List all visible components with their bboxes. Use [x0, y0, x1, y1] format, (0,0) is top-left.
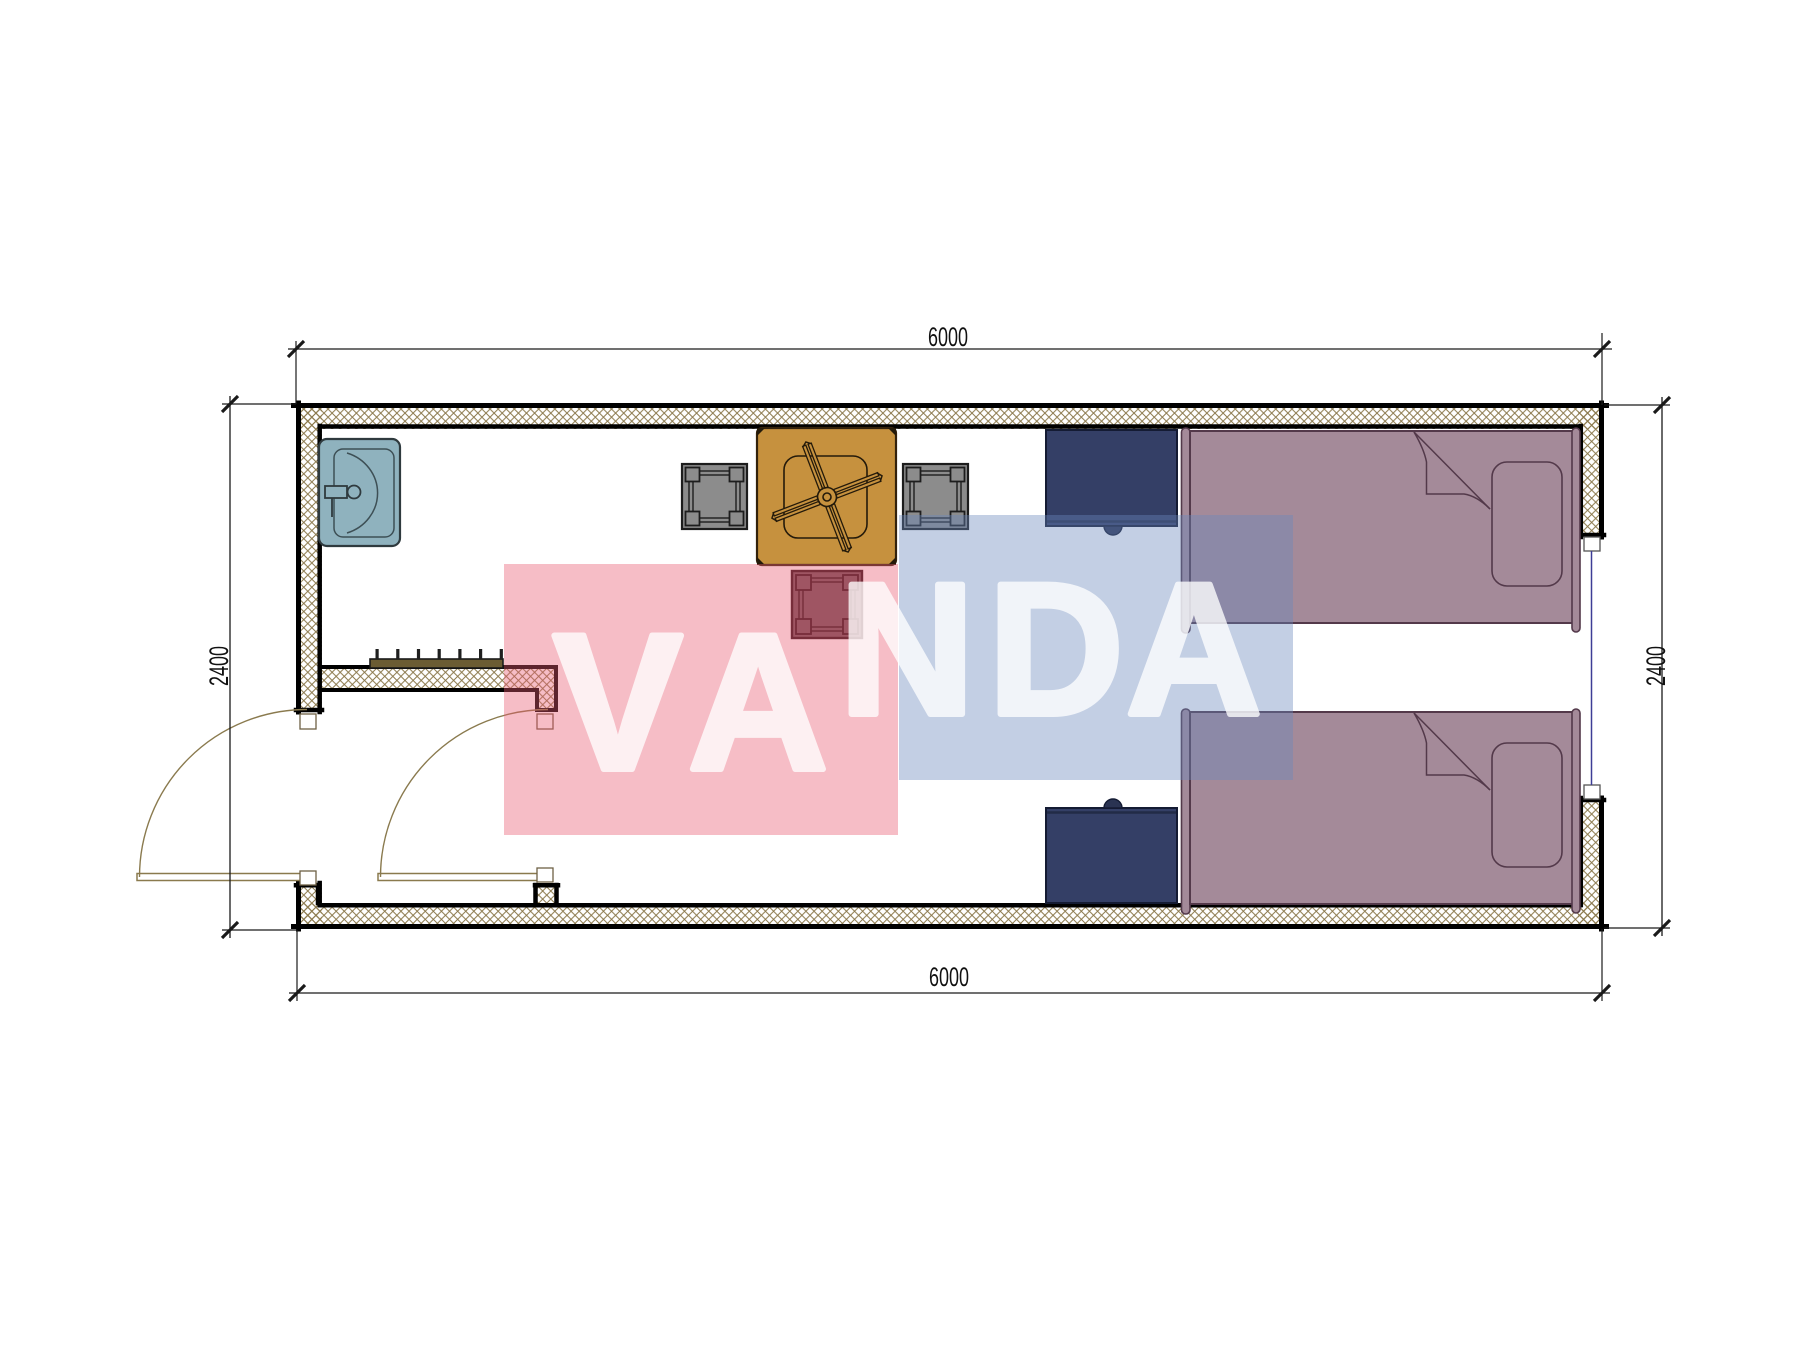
svg-text:N: N — [839, 544, 975, 754]
svg-text:6000: 6000 — [928, 322, 968, 352]
svg-text:D: D — [988, 544, 1124, 754]
svg-text:2400: 2400 — [1641, 646, 1671, 686]
svg-text:V: V — [553, 594, 682, 811]
svg-text:2400: 2400 — [204, 646, 234, 686]
svg-text:A: A — [1126, 544, 1262, 754]
svg-text:6000: 6000 — [929, 962, 969, 992]
svg-text:A: A — [688, 594, 828, 811]
